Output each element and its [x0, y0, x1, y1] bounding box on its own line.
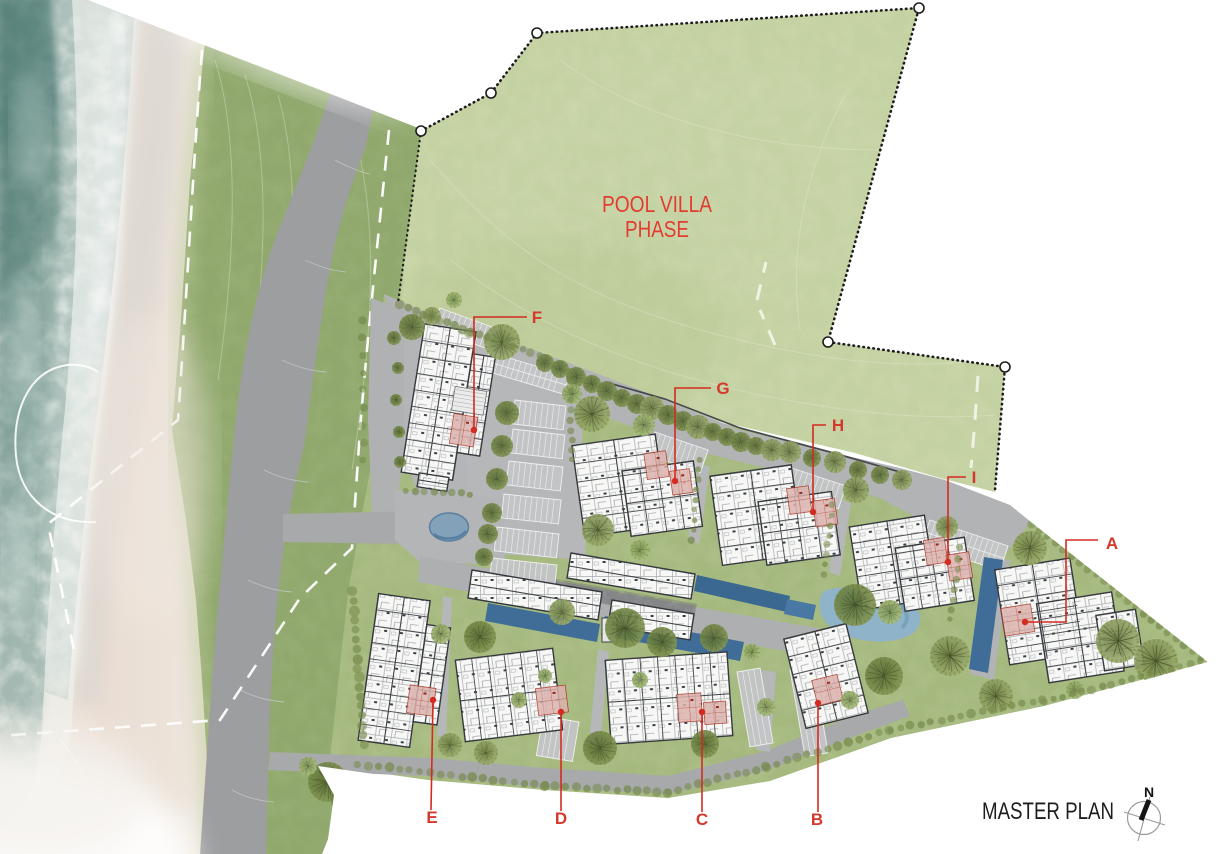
- svg-text:E: E: [426, 808, 437, 827]
- svg-text:G: G: [716, 379, 729, 398]
- svg-text:H: H: [832, 416, 844, 435]
- svg-text:POOL VILLA: POOL VILLA: [602, 191, 713, 217]
- svg-text:N: N: [1144, 784, 1154, 800]
- svg-text:A: A: [1106, 534, 1118, 553]
- svg-text:PHASE: PHASE: [625, 216, 689, 242]
- svg-text:C: C: [696, 810, 708, 829]
- svg-text:I: I: [972, 468, 977, 487]
- svg-text:F: F: [532, 308, 542, 327]
- svg-text:D: D: [555, 809, 567, 828]
- svg-text:MASTER PLAN: MASTER PLAN: [982, 798, 1114, 825]
- svg-text:B: B: [811, 810, 823, 829]
